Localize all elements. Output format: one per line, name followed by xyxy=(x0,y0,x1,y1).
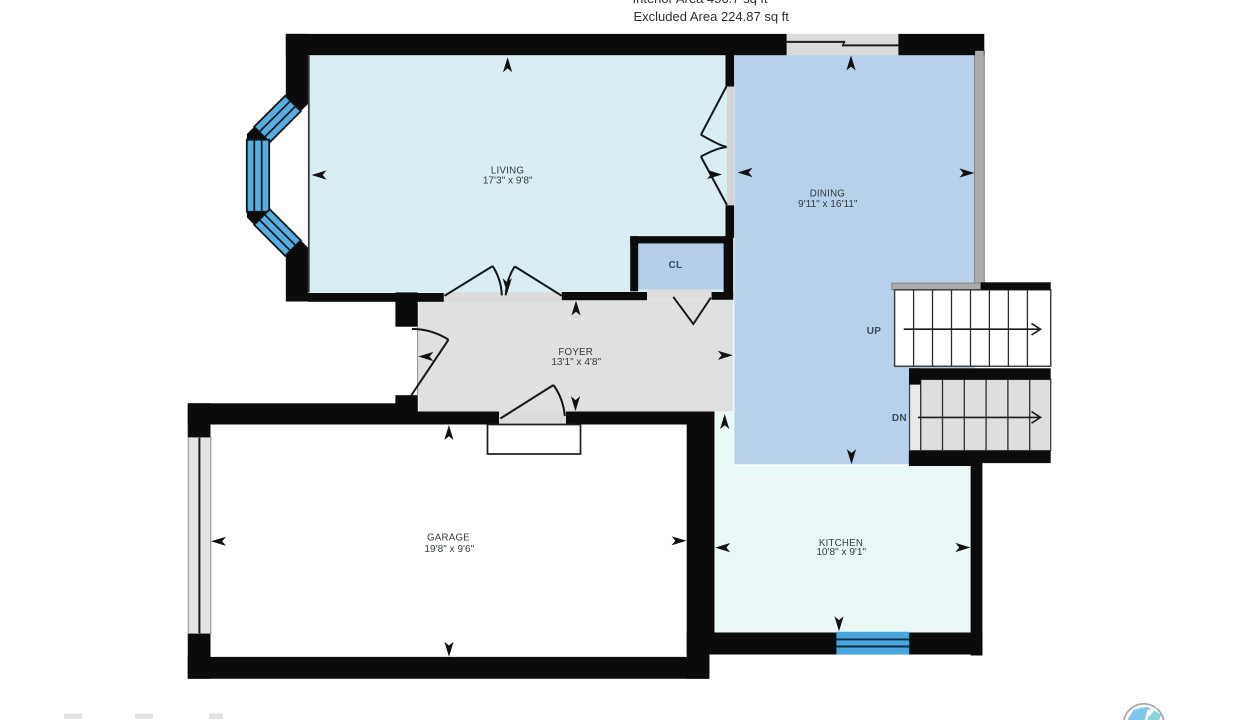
svg-text:CL: CL xyxy=(669,260,683,271)
svg-text:13'1" x 4'8": 13'1" x 4'8" xyxy=(551,357,601,368)
svg-text:UP: UP xyxy=(867,326,882,337)
svg-text:10'8" x 9'1": 10'8" x 9'1" xyxy=(816,547,866,558)
svg-text:17'3" x 9'8": 17'3" x 9'8" xyxy=(483,176,533,187)
svg-text:FOYER: FOYER xyxy=(558,347,593,358)
svg-text:DINING: DINING xyxy=(810,189,845,200)
svg-text:DN: DN xyxy=(892,413,907,424)
svg-text:19'8" x 9'6": 19'8" x 9'6" xyxy=(424,544,474,555)
svg-text:9'11" x 16'11": 9'11" x 16'11" xyxy=(798,199,858,210)
svg-text:GARAGE: GARAGE xyxy=(427,532,470,543)
